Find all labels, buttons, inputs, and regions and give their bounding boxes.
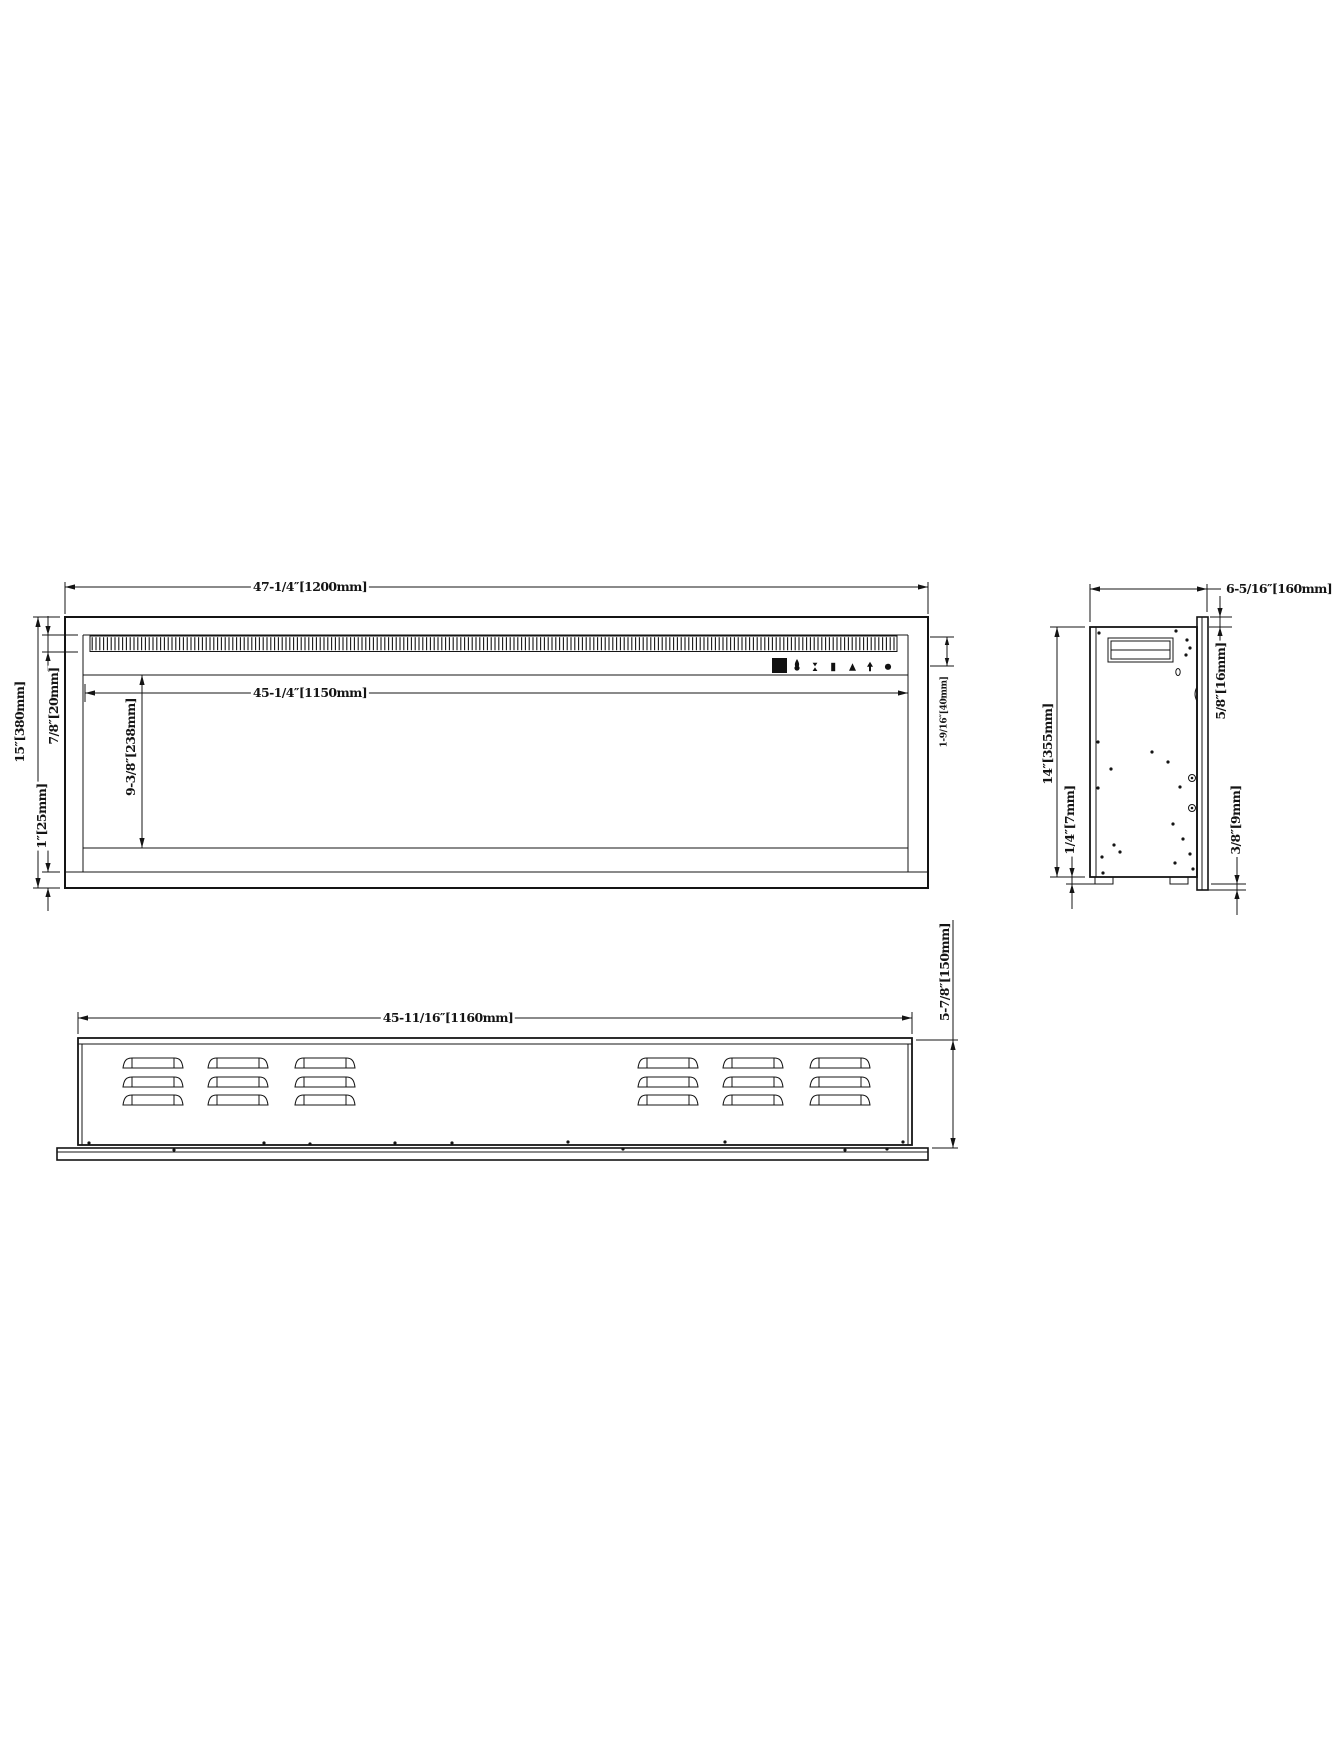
screw-holes — [87, 1140, 904, 1151]
dim-side-flange-lip: 5/8″[16mm] — [1215, 640, 1228, 721]
bolt — [1189, 775, 1196, 812]
dim-side-flange-overhang: 3/8″[9mm] — [1230, 783, 1243, 856]
side-body — [1090, 627, 1197, 877]
grille-hatch — [92, 637, 894, 650]
screw-holes — [1096, 629, 1194, 874]
top-body — [78, 1038, 912, 1145]
power-icon — [885, 664, 891, 670]
dim-side-overall-depth: 6-5/16″[160mm] — [1224, 583, 1334, 596]
bar-icon — [831, 663, 835, 671]
drawing-canvas: 47-1/4″[1200mm] 45-1/4″[1150mm] 15″[380m… — [0, 0, 1340, 1753]
display-window — [772, 658, 787, 673]
front-outer-frame — [65, 617, 928, 888]
dim-front-visible-width: 45-1/4″[1150mm] — [251, 687, 369, 700]
dim-top-body-depth: 5-7/8″[150mm] — [939, 921, 952, 1023]
dim-front-overall-height: 15″[380mm] — [14, 679, 27, 764]
dim-front-control-band: 1-9/16″[40mm] — [941, 675, 950, 750]
flame-icon — [794, 659, 799, 671]
dim-side-foot-height: 1/4″[7mm] — [1064, 783, 1077, 856]
dim-front-overall-width: 47-1/4″[1200mm] — [251, 581, 369, 594]
top-view — [57, 1038, 928, 1160]
arrow-up-icon — [867, 662, 873, 671]
dim-side-body-height: 14″[355mm] — [1042, 701, 1055, 786]
dim-front-opening-height: 9-3/8″[238mm] — [125, 696, 138, 798]
foot — [1170, 877, 1188, 884]
front-view — [65, 617, 928, 888]
vent-louvers — [123, 1058, 870, 1105]
dim-front-bottom-trim: 1″[25mm] — [36, 781, 49, 850]
dim-front-grille-height: 7/8″[20mm] — [48, 665, 61, 746]
base-plate — [57, 1148, 928, 1160]
control-panel — [772, 658, 891, 673]
foot — [1095, 877, 1113, 884]
side-view — [1090, 617, 1208, 890]
triangle-up-icon — [849, 663, 856, 671]
keyhole-slot — [1176, 669, 1180, 676]
mode-icon — [813, 663, 818, 671]
drawing-linework — [0, 0, 1340, 1753]
dim-top-body-width: 45-11/16″[1160mm] — [381, 1012, 515, 1025]
